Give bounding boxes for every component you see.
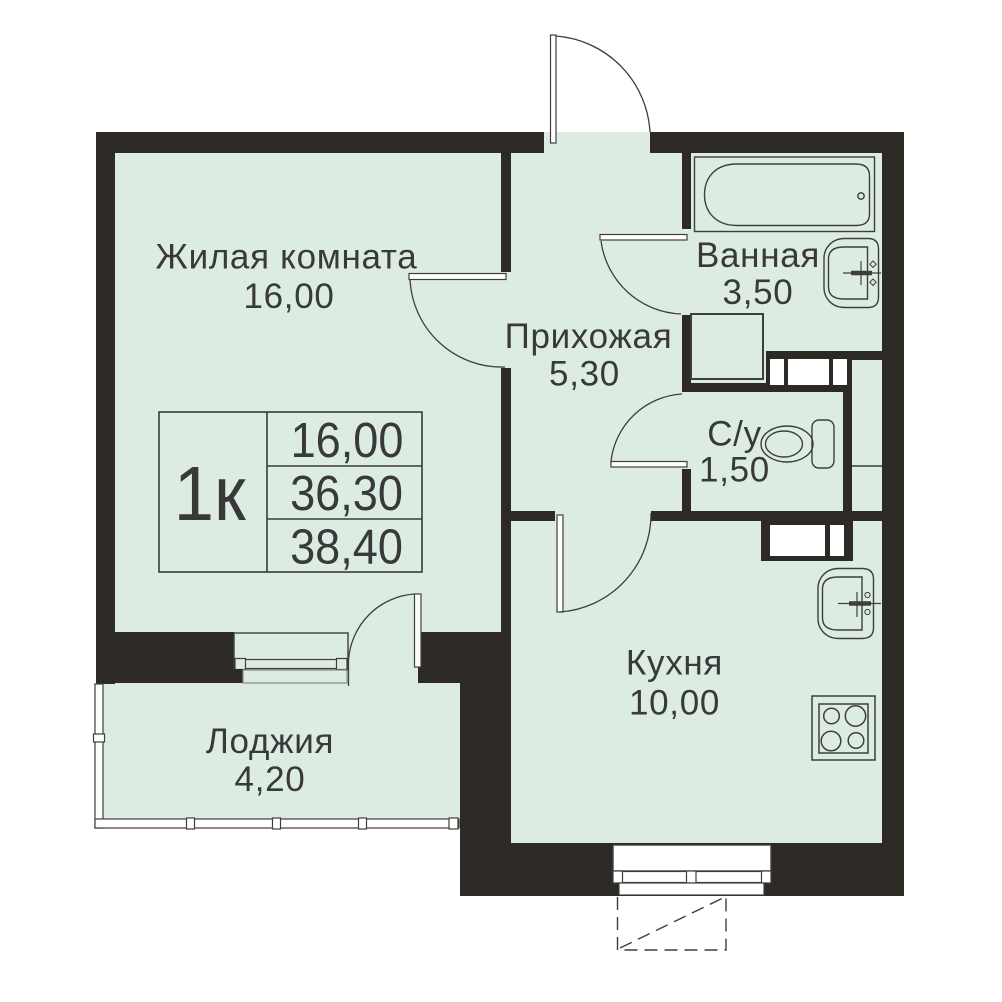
svg-text:Ванная: Ванная [696,236,820,275]
svg-text:38,40: 38,40 [290,519,403,574]
svg-text:16,00: 16,00 [243,277,334,316]
svg-text:16,00: 16,00 [291,412,404,467]
svg-text:36,30: 36,30 [290,465,403,520]
svg-text:4,20: 4,20 [235,760,306,799]
svg-text:Лоджия: Лоджия [206,722,334,761]
svg-text:1,50: 1,50 [699,451,770,490]
svg-text:С/у: С/у [707,415,762,454]
svg-text:10,00: 10,00 [629,684,720,723]
svg-text:5,30: 5,30 [549,355,620,394]
svg-text:1к: 1к [174,450,247,537]
svg-text:Жилая комната: Жилая комната [156,238,418,277]
svg-text:Прихожая: Прихожая [505,317,673,356]
svg-text:Кухня: Кухня [626,644,723,683]
svg-text:3,50: 3,50 [723,273,794,312]
